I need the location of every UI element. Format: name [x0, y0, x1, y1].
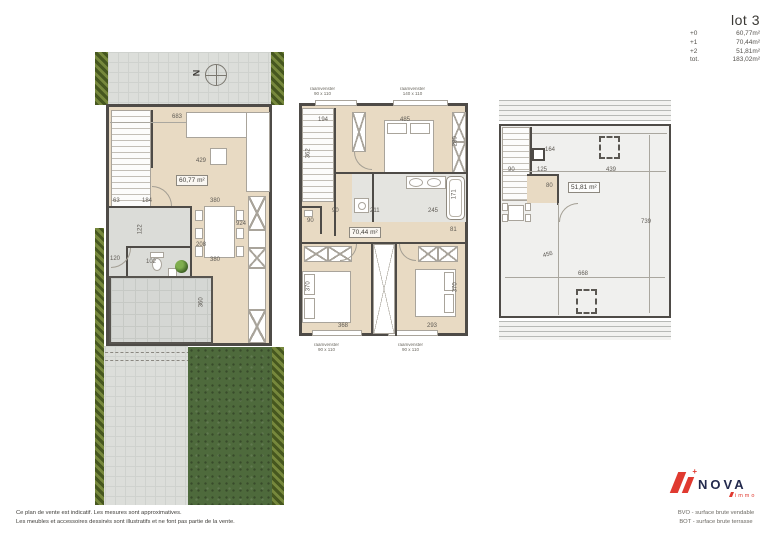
chimney-flue [532, 148, 545, 161]
wall [336, 172, 468, 174]
nova-logo-mark: + [672, 468, 694, 496]
wardrobe [452, 142, 466, 174]
area-row: tot.183,02m² [590, 56, 760, 65]
hedge-strip [271, 52, 284, 105]
driveway [108, 52, 271, 105]
fixture [304, 210, 313, 217]
washing-machine-drum [358, 202, 366, 210]
dimension-line [649, 135, 650, 313]
area-summary-table: +060,77m²+170,44m²+251,81m²tot.183,02m² [590, 30, 760, 65]
surface-legend: BVO - surface brute vendable BOT - surfa… [668, 509, 764, 526]
wardrobe [304, 246, 328, 262]
chair [502, 203, 508, 211]
kitchen-counter [248, 230, 266, 248]
pillow [304, 274, 315, 295]
window-label: raamvenster 90 x 110 [314, 343, 339, 353]
disclaimer-line: Ce plan de vente est indicatif. Les mesu… [16, 509, 235, 518]
hedge-strip [95, 228, 104, 505]
wall [371, 244, 373, 336]
covered-terrace [109, 276, 213, 344]
chair [525, 203, 531, 211]
window [312, 330, 362, 336]
wall [557, 174, 559, 205]
hedge-strip [272, 347, 284, 505]
lot-title: lot 3 [590, 12, 760, 28]
compass-icon [205, 64, 227, 86]
stairwell-void [373, 244, 395, 334]
floorplan-sheet: lot 3 +060,77m²+170,44m²+251,81m²tot.183… [0, 0, 768, 543]
dimension-line [505, 277, 665, 278]
staircase [302, 108, 334, 202]
wardrobe [452, 112, 466, 142]
bathtub-inner [449, 179, 462, 217]
wardrobe [418, 246, 438, 262]
wall [527, 174, 559, 176]
area-row: +170,44m² [590, 39, 760, 48]
logo-plus-icon: + [692, 467, 697, 476]
terrace-table [508, 205, 524, 221]
dining-table [204, 206, 235, 258]
chair [236, 246, 244, 257]
wall [151, 110, 153, 168]
compass-north-letter: N [191, 70, 201, 77]
logo-brand-name: NOVA [698, 477, 747, 492]
roof-slope [499, 321, 671, 340]
wardrobe [352, 112, 366, 152]
chair [236, 210, 244, 221]
wall [395, 244, 397, 336]
window-label: raamvenster 140 x 110 [400, 87, 425, 97]
stair-access-room [527, 174, 559, 203]
logo-sub-mark [729, 492, 734, 497]
nova-logo: + NOVA immo [672, 468, 762, 500]
disclaimer: Ce plan de vente est indicatif. Les mesu… [16, 509, 235, 526]
area-row: +251,81m² [590, 48, 760, 57]
kitchen-tall-unit [248, 196, 266, 230]
chair [195, 228, 203, 239]
dimension-line [558, 203, 559, 315]
chair [502, 214, 508, 222]
kitchen-counter [248, 268, 266, 310]
chair [236, 228, 244, 239]
sofa [246, 112, 270, 192]
kitchen-tall-unit [248, 310, 266, 343]
dimension-line [503, 171, 666, 172]
staircase [111, 110, 151, 208]
chair [195, 246, 203, 257]
wall [109, 206, 192, 208]
window [315, 100, 357, 106]
window-label: raamvenster 90 x 110 [398, 343, 423, 353]
pillow [444, 294, 454, 313]
sink [409, 178, 423, 187]
wall [126, 246, 192, 248]
lawn [188, 347, 272, 505]
pillow [410, 123, 430, 134]
area-row: +060,77m² [590, 30, 760, 39]
chair [525, 214, 531, 222]
plant [175, 260, 188, 273]
overhang-dashed-line [100, 360, 200, 361]
coffee-table [210, 148, 227, 165]
staircase [502, 127, 530, 201]
window-label: raamvenster 90 x 110 [310, 87, 335, 97]
wall [320, 206, 322, 234]
disclaimer-line: Les meubles et accessoires dessinés sont… [16, 518, 235, 527]
pillow [444, 272, 454, 291]
legend-line: BVO - surface brute vendable [668, 509, 764, 518]
hedge-strip [95, 52, 108, 105]
window [393, 100, 448, 106]
wardrobe [438, 246, 458, 262]
logo-subtitle: immo [730, 492, 756, 499]
roof-slope [499, 100, 671, 121]
overhang-dashed-line [100, 352, 200, 353]
skylight-dashed [576, 289, 597, 314]
kitchen-tall-unit [248, 248, 266, 268]
toilet [152, 258, 162, 271]
chair [195, 210, 203, 221]
pillow [304, 298, 315, 319]
sink [427, 178, 441, 187]
skylight-dashed [599, 136, 620, 159]
wall [372, 174, 374, 222]
header: lot 3 +060,77m²+170,44m²+251,81m²tot.183… [590, 12, 760, 65]
wall [301, 206, 321, 208]
pillow [387, 123, 407, 134]
legend-line: BOT - surface brute terrasse [668, 518, 764, 527]
terrace-path [95, 346, 188, 505]
logo-bar [682, 477, 694, 493]
